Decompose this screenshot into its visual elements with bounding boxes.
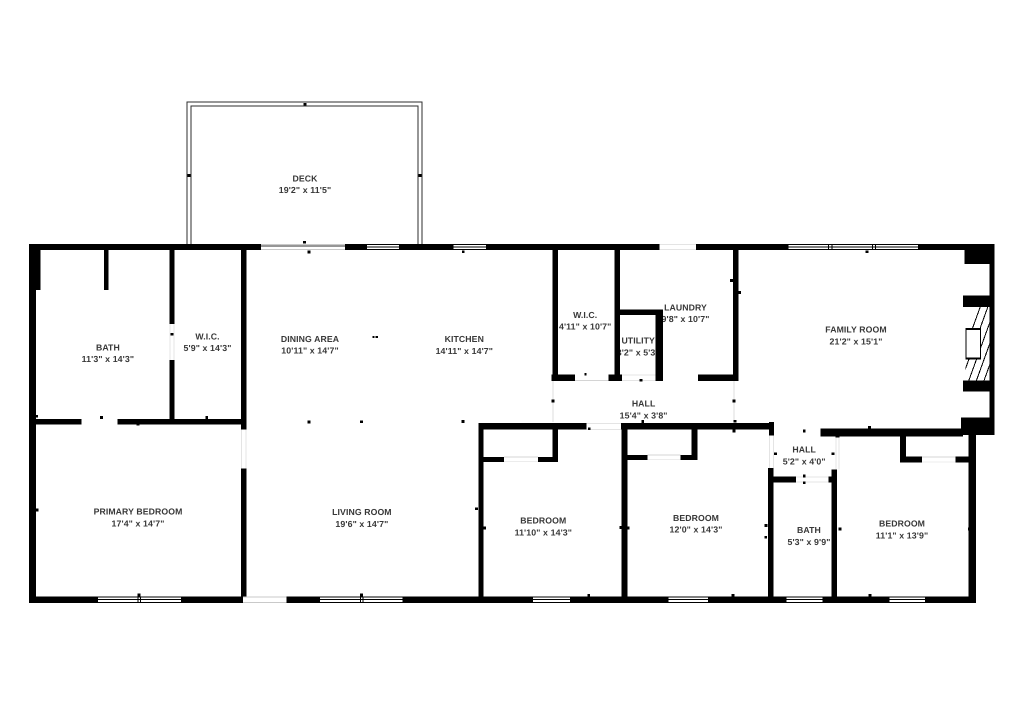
svg-text:BATH: BATH: [96, 342, 120, 352]
svg-text:BEDROOM: BEDROOM: [520, 516, 566, 526]
svg-text:11'3" x 14'3": 11'3" x 14'3": [82, 354, 134, 364]
svg-text:10'11" x 14'7": 10'11" x 14'7": [281, 346, 338, 356]
svg-text:BEDROOM: BEDROOM: [673, 513, 719, 523]
svg-text:19'6" x 14'7": 19'6" x 14'7": [335, 519, 388, 529]
svg-text:HALL: HALL: [792, 445, 816, 455]
svg-text:11'1" x 13'9": 11'1" x 13'9": [876, 531, 928, 541]
svg-text:11'10" x 14'3": 11'10" x 14'3": [515, 528, 572, 538]
svg-text:W.I.C.: W.I.C.: [573, 310, 597, 320]
svg-text:19'2" x 11'5": 19'2" x 11'5": [279, 185, 331, 195]
svg-text:5'2" x 4'0": 5'2" x 4'0": [783, 457, 826, 467]
svg-text:5'9" x 14'3": 5'9" x 14'3": [184, 343, 232, 353]
svg-text:5'3" x 9'9": 5'3" x 9'9": [788, 537, 831, 547]
svg-text:LAUNDRY: LAUNDRY: [664, 302, 707, 312]
svg-text:DINING AREA: DINING AREA: [281, 334, 340, 344]
svg-text:LIVING ROOM: LIVING ROOM: [332, 507, 392, 517]
svg-text:4'11" x 10'7": 4'11" x 10'7": [559, 322, 611, 332]
svg-text:UTILITY: UTILITY: [621, 336, 655, 346]
svg-text:12'0" x 14'3": 12'0" x 14'3": [670, 525, 723, 535]
svg-text:PRIMARY BEDROOM: PRIMARY BEDROOM: [94, 507, 183, 517]
svg-text:BATH: BATH: [797, 525, 821, 535]
svg-text:W.I.C.: W.I.C.: [195, 331, 219, 341]
svg-text:3'2" x 5'3": 3'2" x 5'3": [617, 347, 660, 357]
svg-text:DECK: DECK: [292, 173, 318, 183]
svg-text:KITCHEN: KITCHEN: [445, 334, 484, 344]
svg-text:HALL: HALL: [632, 399, 656, 409]
svg-text:17'4" x 14'7": 17'4" x 14'7": [112, 518, 165, 528]
svg-text:21'2" x 15'1": 21'2" x 15'1": [830, 336, 883, 346]
svg-text:14'11" x 14'7": 14'11" x 14'7": [436, 346, 493, 356]
svg-text:15'4" x 3'8": 15'4" x 3'8": [620, 410, 668, 420]
svg-text:BEDROOM: BEDROOM: [879, 519, 925, 529]
svg-text:FAMILY ROOM: FAMILY ROOM: [825, 325, 886, 335]
svg-text:9'8" x 10'7": 9'8" x 10'7": [662, 314, 710, 324]
